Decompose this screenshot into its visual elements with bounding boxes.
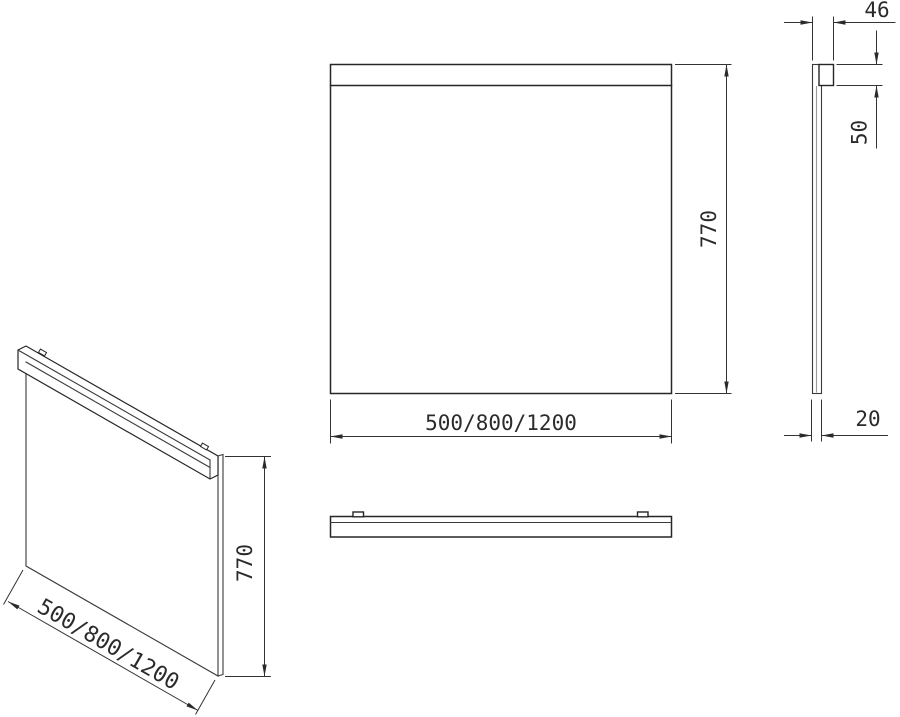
front-view: 770 500/800/1200: [331, 65, 732, 444]
top-clip-left: [353, 512, 364, 517]
side-dim-thickness: 20: [784, 400, 888, 442]
extension-line: [196, 680, 216, 715]
dimension-arrow: [801, 20, 813, 24]
front-width-dim-text: 500/800/1200: [425, 411, 577, 435]
dimension-arrow: [800, 433, 812, 437]
dimension-arrow: [874, 86, 878, 98]
front-dim-width: 500/800/1200: [331, 400, 672, 444]
side-rail-block: [819, 65, 834, 86]
technical-drawing-page: 770 500/800/1200 46: [0, 0, 900, 717]
side-view: 46 50 20: [784, 0, 896, 442]
dimension-arrow: [660, 434, 672, 438]
top-clip-right: [638, 512, 649, 517]
mirror-front-outline: [331, 65, 672, 394]
iso-height-dim-text: 770: [233, 544, 257, 582]
front-dim-height: 770: [675, 65, 732, 394]
dimension-arrow: [8, 602, 20, 610]
dimension-arrow: [834, 20, 846, 24]
side-thickness-dim-text: 20: [855, 407, 880, 431]
dimension-arrow: [331, 434, 343, 438]
dimension-arrow: [724, 382, 728, 394]
dimension-arrow: [822, 433, 834, 437]
dimension-arrow: [262, 457, 266, 469]
top-profile-outline: [331, 517, 672, 538]
side-dim-depth: 46: [784, 0, 896, 61]
iso-glass-thickness-edge: [218, 455, 223, 677]
iso-dim-height: 770: [225, 457, 271, 677]
side-dim-rail-height: 50: [837, 31, 883, 149]
dimension-arrow: [724, 65, 728, 77]
dimension-arrow: [874, 53, 878, 65]
side-rail-height-dim-text: 50: [848, 120, 872, 145]
technical-drawing-canvas: 770 500/800/1200 46: [0, 0, 900, 717]
top-view: [331, 512, 672, 537]
dimension-arrow: [262, 665, 266, 677]
dimension-arrow: [187, 703, 199, 711]
side-depth-dim-text: 46: [864, 0, 889, 22]
isometric-view: 770 500/800/1200: [4, 346, 272, 715]
front-height-dim-text: 770: [697, 210, 721, 248]
extension-line: [4, 570, 24, 605]
